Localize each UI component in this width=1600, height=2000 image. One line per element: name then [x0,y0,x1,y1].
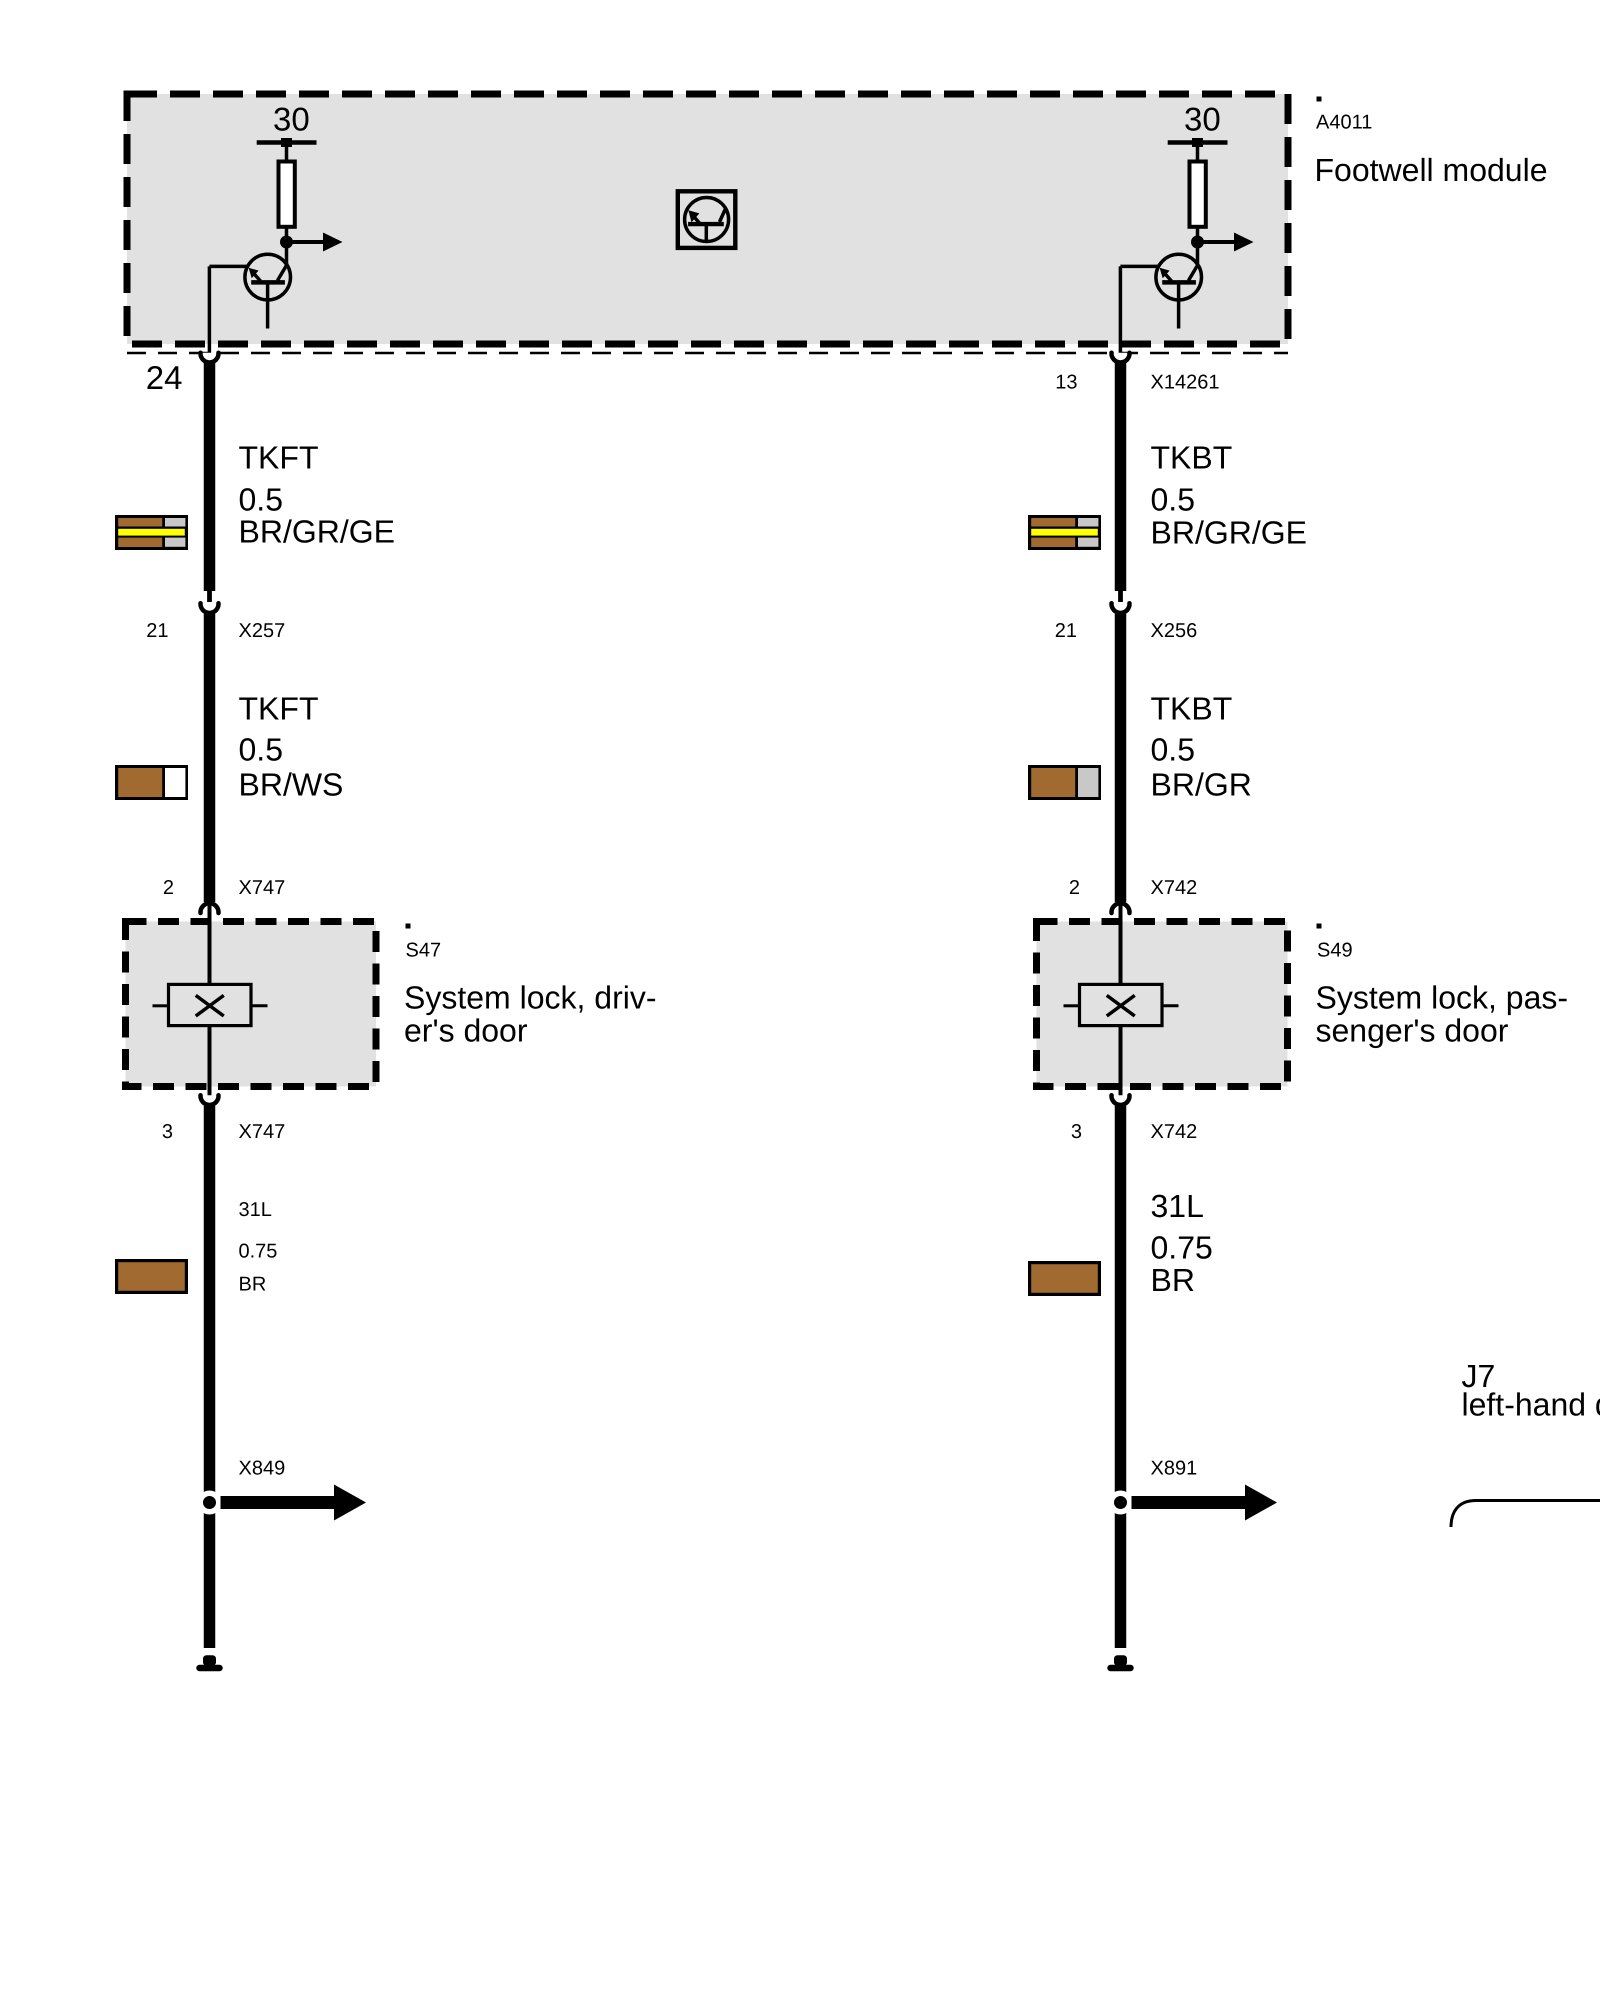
svg-text:30: 30 [1184,101,1221,138]
svg-text:21: 21 [1055,620,1077,642]
svg-text:S49: S49 [1317,940,1353,962]
svg-text:BR: BR [239,1274,267,1296]
svg-text:X742: X742 [1151,1121,1198,1143]
svg-text:System lock, pas-: System lock, pas- [1316,980,1569,1016]
svg-text:TKFT: TKFT [239,691,319,727]
svg-text:0.5: 0.5 [1151,482,1195,518]
svg-text:X849: X849 [239,1458,286,1480]
svg-text:13: 13 [1055,372,1077,394]
svg-text:X747: X747 [239,877,286,899]
svg-text:24: 24 [146,359,183,396]
svg-text:BR/GR/GE: BR/GR/GE [1151,515,1307,551]
svg-text:er's door: er's door [404,1013,528,1049]
svg-text:0.5: 0.5 [239,482,283,518]
svg-text:X742: X742 [1151,877,1198,899]
svg-text:X257: X257 [239,620,286,642]
svg-text:Footwell module: Footwell module [1315,152,1548,188]
svg-text:21: 21 [146,620,168,642]
svg-text:0.75: 0.75 [239,1241,278,1263]
svg-text:TKFT: TKFT [239,440,319,476]
svg-text:X14261: X14261 [1151,372,1220,394]
svg-text:TKBT: TKBT [1151,691,1233,727]
svg-text:31L: 31L [239,1199,272,1221]
svg-text:30: 30 [273,101,310,138]
svg-text:BR/GR: BR/GR [1151,767,1252,803]
svg-text:3: 3 [162,1121,173,1143]
svg-text:senger's door: senger's door [1316,1013,1509,1049]
svg-text:BR/WS: BR/WS [239,767,344,803]
svg-text:0.5: 0.5 [239,732,283,768]
svg-text:TKBT: TKBT [1151,440,1233,476]
svg-text:BR/GR/GE: BR/GR/GE [239,514,395,550]
svg-text:System lock, driv-: System lock, driv- [404,980,656,1016]
svg-text:2: 2 [1069,877,1080,899]
svg-text:A4011: A4011 [1316,112,1372,134]
svg-text:0.75: 0.75 [1151,1230,1213,1266]
svg-text:X747: X747 [239,1121,286,1143]
svg-text:S47: S47 [406,940,442,962]
svg-text:31L: 31L [1151,1188,1204,1224]
svg-text:3: 3 [1071,1121,1082,1143]
svg-text:0.5: 0.5 [1151,732,1195,768]
svg-text:X256: X256 [1151,620,1198,642]
svg-text:left-hand drive: left-hand drive [1462,1387,1600,1423]
svg-text:2: 2 [163,877,174,899]
svg-text:X891: X891 [1151,1458,1198,1480]
svg-text:BR: BR [1151,1262,1195,1298]
